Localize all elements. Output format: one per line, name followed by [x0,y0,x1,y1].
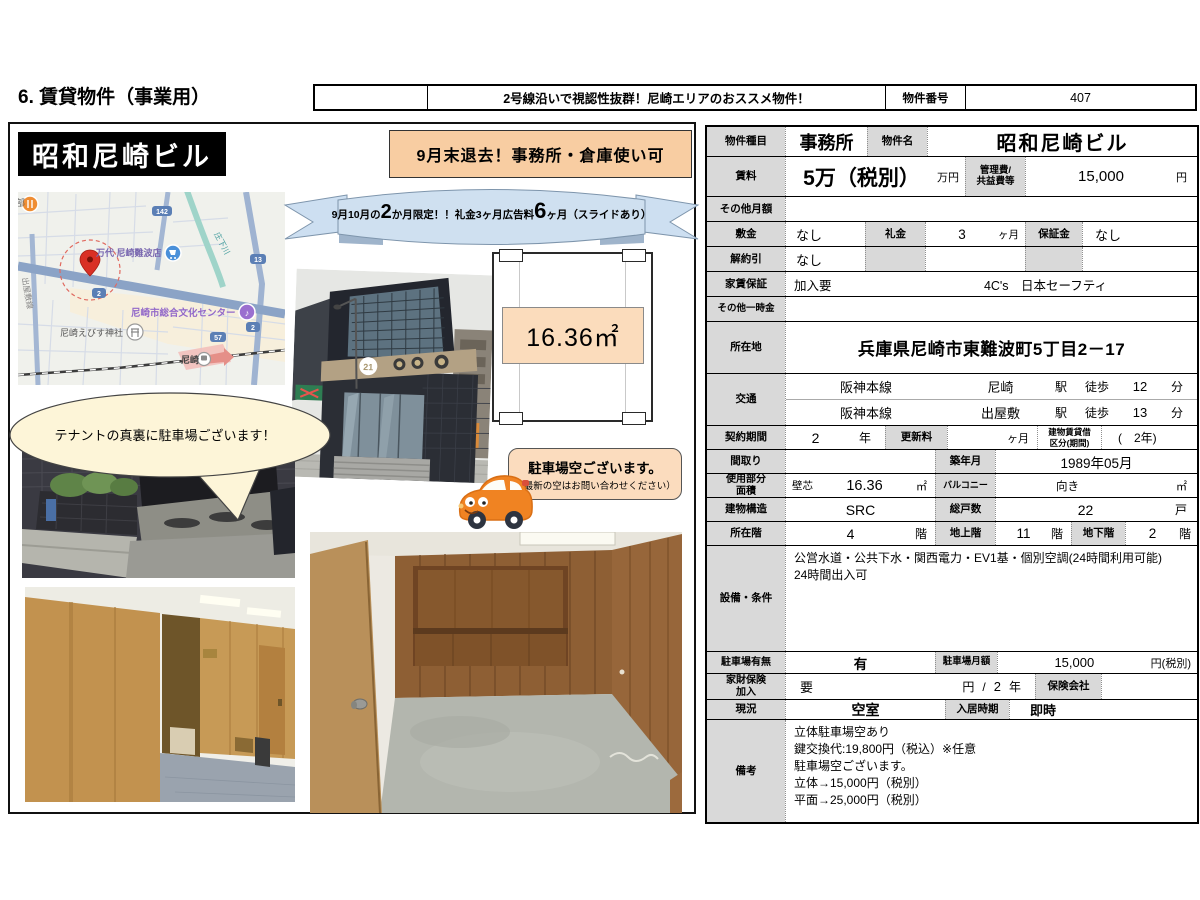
kanri-value: 15,000 [1026,168,1176,185]
map-label-shrine: 尼崎えびす神社 [60,327,123,338]
parking-fee-label: 駐車場月額 [935,652,997,673]
name-value: 昭和尼崎ビル [927,127,1197,156]
ribbon-text-pre: 9月10月の [332,207,381,222]
parking-fee-value: 15,000 [998,655,1151,670]
row-access: 交通 阪神本線 尼崎 駅 徒歩 12 分 阪神本線 出屋敷 駅 徒歩 13 分 [707,374,1197,426]
units-label: 総戸数 [935,498,995,521]
below-label: 地下階 [1071,522,1125,545]
insurance-company-value [1101,674,1197,699]
access-line1-unit: 分 [1157,378,1197,395]
insurance-year: 年 [1001,678,1035,695]
insurance-slash: / [974,680,993,694]
kaiyaku-value: なし [785,247,865,271]
access-line2-walk: 徒歩 [1085,404,1123,421]
floor-plan-area-label: 16.36㎡ [502,307,644,364]
remarks-label: 備考 [707,720,785,822]
row-insurance: 家財保険 加入 要 円 / 2 年 保険会社 [707,674,1197,700]
row-deposit: 敷金 なし 礼金 3 ヶ月 保証金 なし [707,222,1197,247]
interior-room-photo [310,532,682,813]
route-57-label: 57 [214,335,222,342]
header-empty-cell [315,86,427,109]
svg-text:21: 21 [363,362,373,372]
floor-label: 所在階 [707,522,785,545]
map-label-station: 尼崎 [181,354,199,365]
structure-label: 建物構造 [707,498,785,521]
key-money-label: 礼金 [865,222,925,246]
other-monthly-value [785,197,1197,221]
header-strip: 2号線沿いで視認性抜群！尼崎エリアのおススメ物件！ 物件番号 407 [313,84,1197,111]
row-status: 現況 空室 入居時期 即時 [707,700,1197,720]
parking-value: 有 [785,652,935,673]
access-line1-station: 尼崎 [946,377,1055,396]
movein-value: 即時 [1009,700,1197,719]
row-facilities: 設備・条件 公営水道・公共下水・関西電力・EV1基・個別空調(24時間利用可能)… [707,546,1197,652]
row-area: 使用部分 面積 壁芯 16.36 ㎡ バルコニー 向き ㎡ [707,474,1197,498]
contract-label: 契約期間 [707,426,785,449]
building-name-box: 昭和尼崎ビル [18,132,226,176]
row-address: 所在地 兵庫県尼崎市東難波町5丁目2－17 [707,322,1197,374]
guarantee-company: 4C's 日本セーフティ [894,275,1197,294]
access-label: 交通 [707,374,785,425]
map-label-store: 万代 尼崎難波店 [95,247,162,258]
insurance-label: 家財保険 加入 [707,674,785,699]
kanri-label: 管理費/ 共益費等 [965,157,1025,196]
parking-fee-unit: 円(税別) [1151,655,1197,671]
parking-label: 駐車場有無 [707,652,785,673]
ribbon-text-mid: か月限定！！礼金3ヶ月広告料 [392,207,534,222]
access-line2-unit: 分 [1157,404,1197,421]
floor-plan: 16.36㎡ [492,252,653,422]
kaiyaku-empty1 [925,247,1025,271]
built-label: 築年月 [935,450,995,473]
kaiyaku-gray2 [1025,247,1082,271]
facilities-value: 公営水道・公共下水・関西電力・EV1基・個別空調(24時間利用可能) 24時間出… [785,546,1197,651]
below-value: 2 [1126,526,1179,541]
car-icon [452,468,537,534]
address-label: 所在地 [707,322,785,373]
other-onetime-label: その他一時金 [707,297,785,321]
area-value: 16.36 [813,478,916,494]
corridor-photo [25,587,295,802]
row-contract: 契約期間 2 年 更新料 ヶ月 建物賃貸借 区分(期間) ( 2年) [707,426,1197,450]
built-value: 1989年05月 [995,450,1197,473]
parking-bubble-line2: （最新の空はお問い合わせください） [514,478,676,492]
insurance-company-label: 保険会社 [1035,674,1101,699]
structure-value: SRC [785,498,935,521]
parking-back-bubble-text: テナントの真裏に駐車場ございます！ [25,412,305,456]
ribbon-text-big1: 2 [381,201,392,224]
balcony-label: バルコニー [935,474,995,497]
row-madori: 間取り 築年月 1989年05月 [707,450,1197,474]
other-onetime-value [785,297,1197,321]
address-value: 兵庫県尼崎市東難波町5丁目2－17 [785,322,1197,373]
units-value: 22 [996,502,1175,518]
deposit-label: 敷金 [707,222,785,246]
floor-plan-corner [622,249,646,262]
row-kaiyaku: 解約引 なし [707,247,1197,272]
above-value: 11 [996,526,1051,541]
access-line-2: 阪神本線 出屋敷 駅 徒歩 13 分 [786,400,1197,425]
area-method: 壁芯 [786,478,813,493]
floor-unit: 階 [915,525,935,542]
type-label: 物件種目 [707,127,785,156]
row-structure: 建物構造 SRC 総戸数 22 戸 [707,498,1197,522]
access-line1-min: 12 [1123,379,1157,394]
other-monthly-label: その他月額 [707,197,785,221]
above-label: 地上階 [935,522,995,545]
row-rent: 賃料 5万（税別） 万円 管理費/ 共益費等 15,000 円 [707,157,1197,197]
access-line2-sta: 駅 [1055,404,1085,421]
route-142-label: 142 [156,209,168,216]
status-value: 空室 [785,700,945,719]
rent-value: 5万（税別） [786,162,937,192]
status-label: 現況 [707,700,785,719]
property-no-label: 物件番号 [885,86,965,109]
row-type: 物件種目 事務所 物件名 昭和尼崎ビル [707,127,1197,157]
madori-label: 間取り [707,450,785,473]
area-unit: ㎡ [916,478,935,494]
deposit-value: なし [785,222,865,246]
row-guarantee: 家賃保証 加入要 4C's 日本セーフティ [707,272,1197,297]
key-money-value: 3 [926,227,998,242]
insurance-value: 要 [786,677,813,696]
muki-label: 向き [996,478,1079,494]
kaiyaku-gray1 [865,247,925,271]
rent-label: 賃料 [707,157,785,196]
access-line1-sta: 駅 [1055,378,1085,395]
contract-unit: 年 [845,426,885,449]
access-line-1: 阪神本線 尼崎 駅 徒歩 12 分 [786,374,1197,400]
floor-plan-corner [499,249,523,262]
route-2a-label: 2 [97,291,101,298]
property-no-value: 407 [965,86,1195,109]
row-floor: 所在階 4 階 地上階 11 階 地下階 2 階 [707,522,1197,546]
row-other-monthly: その他月額 [707,197,1197,222]
parking-bubble-line1: 駐車場空ございます。 [528,457,662,477]
units-unit: 戸 [1175,501,1197,518]
madori-value [785,450,935,473]
rent-unit: 万円 [937,169,965,185]
balcony-unit: ㎡ [1079,478,1197,494]
access-line2-station: 出屋敷 [946,403,1055,422]
row-parking: 駐車場有無 有 駐車場月額 15,000 円(税別) [707,652,1197,674]
music-note-glyph: ♪ [245,308,250,318]
key-money-unit: ヶ月 [998,227,1025,242]
renewal-label: 更新料 [885,426,947,449]
page-title: 6. 賃貸物件（事業用） [18,82,210,109]
row-other-onetime: その他一時金 [707,297,1197,322]
hosho-value: なし [1082,222,1197,246]
guarantee-value: 加入要 [786,275,894,294]
access-line2-name: 阪神本線 [786,403,946,422]
catch-copy: 2号線沿いで視認性抜群！尼崎エリアのおススメ物件！ [427,86,885,109]
remarks-value: 立体駐車場空あり 鍵交換代:19,800円（税込）※任意 駐車場空ございます。 … [785,720,1197,822]
highlight-banner: 9月末退去！事務所・倉庫使い可 [389,130,692,178]
row-remarks: 備考 立体駐車場空あり 鍵交換代:19,800円（税込）※任意 駐車場空ございま… [707,720,1197,822]
ribbon-text: 9月10月の2か月限定！！礼金3ヶ月広告料6ヶ月（スライドあり） [300,198,683,232]
access-line2-min: 13 [1123,405,1157,420]
kaiyaku-label: 解約引 [707,247,785,271]
access-line1-name: 阪神本線 [786,377,946,396]
parking-back-bubble [5,390,335,530]
contract-value: 2 [785,426,845,449]
access-line1-walk: 徒歩 [1085,378,1123,395]
location-map: 142 2 13 57 2 ♪ 万代 尼崎難波店 尼崎市総合文化センター 尼崎え… [18,192,285,385]
area-label: 使用部分 面積 [707,474,785,497]
insurance-term: 2 [994,679,1001,694]
kaiyaku-empty2 [1082,247,1197,271]
kanri-unit: 円 [1176,169,1197,185]
above-unit: 階 [1051,525,1071,542]
movein-label: 入居時期 [945,700,1009,719]
route-13-label: 13 [254,257,262,264]
name-label: 物件名 [867,127,927,156]
kubun-label: 建物賃貸借 区分(期間) [1037,426,1101,449]
ribbon-text-big2: 6 [534,198,546,224]
ribbon-text-post: ヶ月（スライドあり） [546,207,651,222]
property-table: 物件種目 事務所 物件名 昭和尼崎ビル 賃料 5万（税別） 万円 管理費/ 共益… [705,125,1199,824]
route-2b-label: 2 [251,325,255,332]
hosho-label: 保証金 [1025,222,1082,246]
map-label-culture-center: 尼崎市総合文化センター [131,307,236,319]
facilities-label: 設備・条件 [707,546,785,651]
floor-plan-corner [622,412,646,425]
renewal-unit: ヶ月 [947,426,1037,449]
floor-plan-corner [499,412,523,425]
train-icon-glyph [201,356,207,361]
floor-value: 4 [786,526,915,542]
kubun-value: ( 2年) [1101,426,1197,449]
guarantee-label: 家賃保証 [707,272,785,296]
insurance-yen: 円 [962,678,974,695]
type-value: 事務所 [785,127,867,156]
below-unit: 階 [1179,525,1197,542]
map-label-corner: 部 [18,197,25,208]
